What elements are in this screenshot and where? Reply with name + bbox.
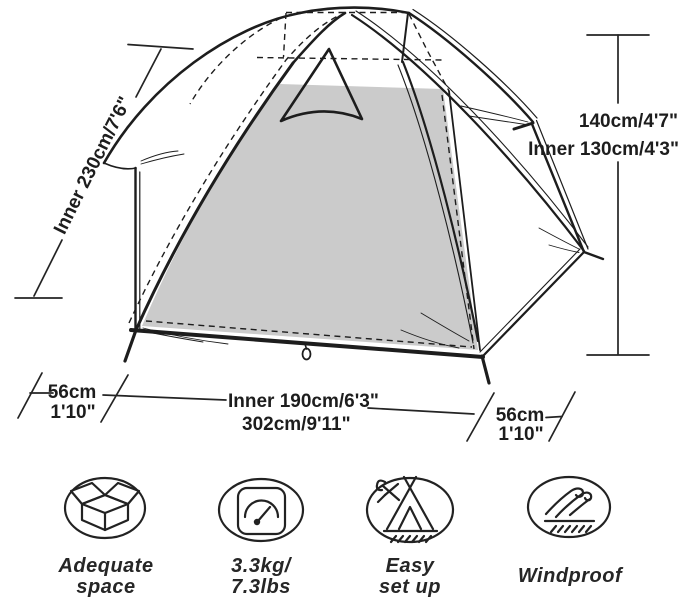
tent-setup-icon [377,477,437,542]
feature-weight: 3.3kg/ 7.3lbs [219,479,303,598]
vestibule-right-cm-label: 56cm [496,405,545,426]
inner-width-label: Inner 190cm/6'3" [228,391,379,412]
total-width-label: 302cm/9'11" [242,414,351,435]
feature-adequate-space: Adequate space [57,478,153,598]
features-row: Adequate space 3.3kg/ 7.3lbs [57,477,624,598]
feature-easy-setup: Easy set up [367,477,453,598]
feature-label-line1: Windproof [518,565,624,587]
vestibule-left-cm-label: 56cm [48,382,97,403]
feature-label-line2: 7.3lbs [231,576,291,598]
diagram-canvas: Inner 230cm/7'6" 140cm/4'7" Inner 130cm/… [0,0,679,599]
feature-label-line1: Easy [386,555,435,577]
weight-scale-icon [238,488,285,534]
feature-label-line2: space [76,576,135,598]
tent-dimensions-infographic: Inner 230cm/7'6" 140cm/4'7" Inner 130cm/… [0,0,679,599]
feature-label-line1: Adequate [57,555,153,577]
guy-loop [303,344,311,360]
open-box-icon [71,483,139,530]
dimension-height: 140cm/4'7" Inner 130cm/4'3" [528,35,679,355]
feature-windproof: Windproof [518,477,624,587]
dimension-slant-depth: Inner 230cm/7'6" [15,45,193,299]
vestibule-right-ft-label: 1'10" [498,424,543,445]
wind-icon [545,489,594,532]
slant-depth-label: Inner 230cm/7'6" [50,93,136,237]
vestibule-left-ft-label: 1'10" [50,402,95,423]
feature-label-line1: 3.3kg/ [231,555,293,577]
inner-height-label: Inner 130cm/4'3" [528,139,679,160]
tent-illustration [104,8,603,383]
dimension-widths: 56cm 1'10" Inner 190cm/6'3" 302cm/9'11" … [18,373,575,445]
height-label: 140cm/4'7" [579,111,678,132]
feature-label-line2: set up [379,576,441,598]
